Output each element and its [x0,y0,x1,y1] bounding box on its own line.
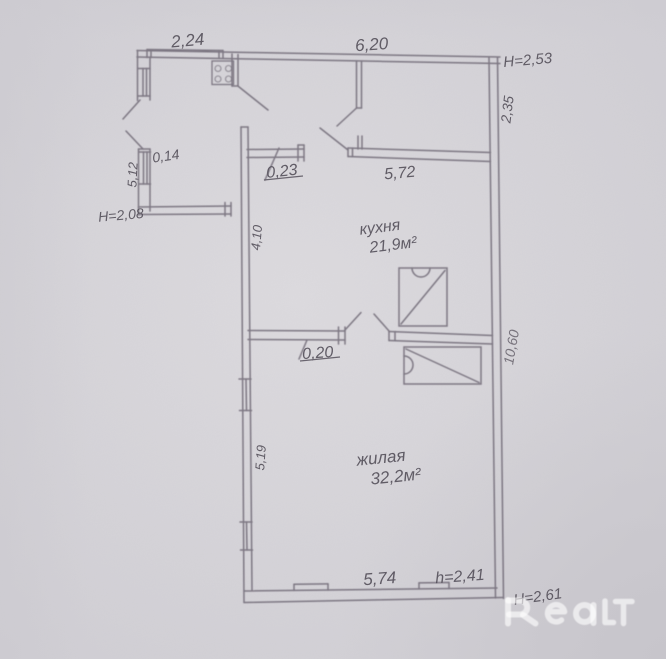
svg-text:h=2,41: h=2,41 [435,567,485,587]
svg-text:5,12: 5,12 [124,161,140,188]
svg-text:5,72: 5,72 [384,164,417,184]
svg-text:4,10: 4,10 [248,224,265,251]
svg-text:5,74: 5,74 [363,568,397,589]
svg-text:6,20: 6,20 [354,34,389,55]
svg-text:2,24: 2,24 [169,30,205,52]
svg-text:5,19: 5,19 [252,445,269,471]
